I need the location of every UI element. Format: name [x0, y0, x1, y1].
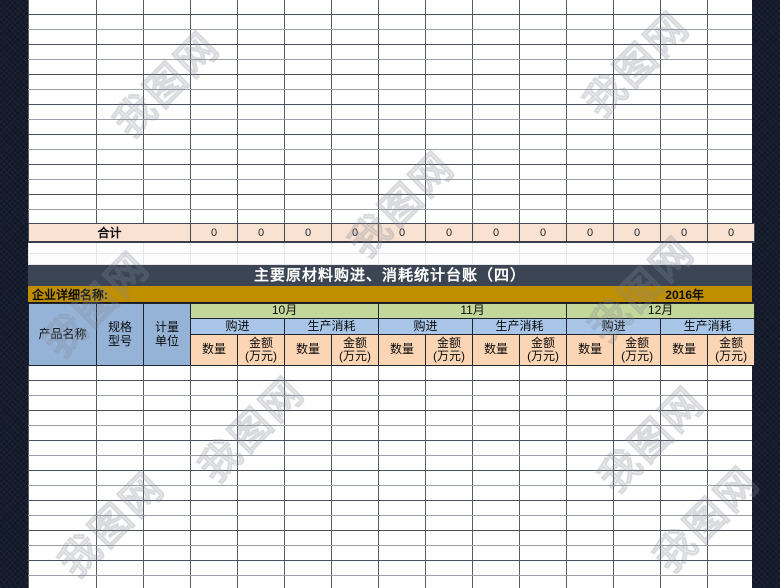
empty-cell[interactable] — [473, 381, 520, 396]
empty-cell[interactable] — [661, 501, 708, 516]
amount-header[interactable]: 金额 (万元) — [332, 335, 379, 366]
empty-cell[interactable] — [567, 426, 614, 441]
purchase-header[interactable]: 购进 — [191, 319, 285, 335]
empty-cell[interactable] — [426, 366, 473, 381]
empty-cell[interactable] — [426, 0, 473, 15]
empty-cell[interactable] — [426, 75, 473, 90]
empty-cell[interactable] — [661, 90, 708, 105]
empty-cell[interactable] — [567, 396, 614, 411]
empty-cell[interactable] — [473, 165, 520, 180]
empty-cell[interactable] — [29, 195, 97, 210]
empty-cell[interactable] — [191, 411, 238, 426]
empty-cell[interactable] — [144, 75, 191, 90]
empty-cell[interactable] — [285, 135, 332, 150]
empty-cell[interactable] — [473, 441, 520, 456]
empty-cell[interactable] — [29, 15, 97, 30]
empty-cell[interactable] — [708, 576, 753, 588]
empty-cell[interactable] — [567, 0, 614, 15]
empty-cell[interactable] — [238, 243, 285, 254]
empty-cell[interactable] — [191, 30, 238, 45]
empty-cell[interactable] — [97, 0, 144, 15]
empty-cell[interactable] — [614, 210, 661, 224]
empty-cell[interactable] — [238, 254, 285, 265]
empty-cell[interactable] — [144, 366, 191, 381]
empty-cell[interactable] — [473, 411, 520, 426]
empty-cell[interactable] — [332, 30, 379, 45]
empty-cell[interactable] — [379, 60, 426, 75]
empty-cell[interactable] — [426, 210, 473, 224]
empty-cell[interactable] — [285, 195, 332, 210]
empty-cell[interactable] — [520, 243, 567, 254]
empty-cell[interactable] — [191, 471, 238, 486]
empty-cell[interactable] — [238, 411, 285, 426]
empty-cell[interactable] — [661, 120, 708, 135]
empty-cell[interactable] — [97, 366, 144, 381]
empty-cell[interactable] — [567, 243, 614, 254]
empty-cell[interactable] — [567, 254, 614, 265]
empty-cell[interactable] — [379, 441, 426, 456]
empty-cell[interactable] — [473, 243, 520, 254]
empty-cell[interactable] — [332, 366, 379, 381]
empty-cell[interactable] — [708, 15, 753, 30]
empty-cell[interactable] — [191, 396, 238, 411]
empty-cell[interactable] — [29, 471, 97, 486]
empty-cell[interactable] — [285, 441, 332, 456]
empty-cell[interactable] — [614, 531, 661, 546]
empty-cell[interactable] — [426, 441, 473, 456]
empty-cell[interactable] — [238, 45, 285, 60]
empty-cell[interactable] — [144, 426, 191, 441]
empty-cell[interactable] — [708, 471, 753, 486]
empty-cell[interactable] — [144, 150, 191, 165]
empty-cell[interactable] — [144, 45, 191, 60]
empty-cell[interactable] — [29, 30, 97, 45]
empty-cell[interactable] — [567, 150, 614, 165]
empty-cell[interactable] — [238, 471, 285, 486]
empty-cell[interactable] — [238, 60, 285, 75]
empty-cell[interactable] — [379, 546, 426, 561]
empty-cell[interactable] — [661, 30, 708, 45]
empty-cell[interactable] — [332, 486, 379, 501]
col-header-spec-model[interactable]: 规格 型号 — [97, 304, 144, 366]
empty-cell[interactable] — [614, 165, 661, 180]
empty-cell[interactable] — [614, 381, 661, 396]
empty-cell[interactable] — [426, 135, 473, 150]
empty-cell[interactable] — [285, 165, 332, 180]
empty-cell[interactable] — [708, 441, 753, 456]
empty-cell[interactable] — [97, 561, 144, 576]
empty-cell[interactable] — [144, 210, 191, 224]
empty-cell[interactable] — [614, 426, 661, 441]
empty-cell[interactable] — [661, 210, 708, 224]
empty-cell[interactable] — [661, 516, 708, 531]
empty-cell[interactable] — [97, 120, 144, 135]
empty-cell[interactable] — [285, 210, 332, 224]
empty-cell[interactable] — [473, 120, 520, 135]
empty-cell[interactable] — [708, 210, 753, 224]
empty-cell[interactable] — [332, 105, 379, 120]
empty-cell[interactable] — [332, 501, 379, 516]
empty-cell[interactable] — [520, 501, 567, 516]
empty-cell[interactable] — [191, 426, 238, 441]
empty-cell[interactable] — [238, 561, 285, 576]
empty-cell[interactable] — [708, 135, 753, 150]
empty-cell[interactable] — [238, 180, 285, 195]
empty-cell[interactable] — [379, 254, 426, 265]
empty-cell[interactable] — [473, 0, 520, 15]
empty-cell[interactable] — [567, 456, 614, 471]
empty-cell[interactable] — [144, 576, 191, 588]
empty-cell[interactable] — [661, 561, 708, 576]
empty-cell[interactable] — [238, 90, 285, 105]
empty-cell[interactable] — [191, 90, 238, 105]
empty-cell[interactable] — [332, 45, 379, 60]
empty-cell[interactable] — [426, 456, 473, 471]
empty-cell[interactable] — [567, 471, 614, 486]
empty-cell[interactable] — [379, 120, 426, 135]
empty-cell[interactable] — [29, 576, 97, 588]
empty-cell[interactable] — [473, 195, 520, 210]
empty-cell[interactable] — [520, 150, 567, 165]
empty-cell[interactable] — [567, 381, 614, 396]
empty-cell[interactable] — [238, 366, 285, 381]
empty-cell[interactable] — [708, 396, 753, 411]
empty-cell[interactable] — [285, 30, 332, 45]
empty-cell[interactable] — [426, 195, 473, 210]
empty-cell[interactable] — [661, 0, 708, 15]
empty-cell[interactable] — [191, 381, 238, 396]
empty-cell[interactable] — [191, 75, 238, 90]
empty-cell[interactable] — [520, 411, 567, 426]
empty-cell[interactable] — [29, 366, 97, 381]
empty-cell[interactable] — [285, 105, 332, 120]
empty-cell[interactable] — [285, 243, 332, 254]
empty-cell[interactable] — [29, 411, 97, 426]
empty-cell[interactable] — [520, 0, 567, 15]
empty-cell[interactable] — [426, 90, 473, 105]
empty-cell[interactable] — [473, 426, 520, 441]
empty-cell[interactable] — [144, 180, 191, 195]
amount-header[interactable]: 金额 (万元) — [426, 335, 473, 366]
empty-cell[interactable] — [708, 366, 753, 381]
empty-cell[interactable] — [332, 90, 379, 105]
empty-cell[interactable] — [520, 471, 567, 486]
empty-cell[interactable] — [332, 150, 379, 165]
empty-cell[interactable] — [97, 426, 144, 441]
empty-cell[interactable] — [379, 381, 426, 396]
consumption-header[interactable]: 生产消耗 — [285, 319, 379, 335]
empty-cell[interactable] — [567, 60, 614, 75]
empty-cell[interactable] — [520, 426, 567, 441]
empty-cell[interactable] — [614, 501, 661, 516]
empty-cell[interactable] — [614, 546, 661, 561]
empty-cell[interactable] — [29, 60, 97, 75]
empty-cell[interactable] — [29, 396, 97, 411]
empty-cell[interactable] — [567, 561, 614, 576]
empty-cell[interactable] — [661, 75, 708, 90]
empty-cell[interactable] — [473, 471, 520, 486]
empty-cell[interactable] — [473, 135, 520, 150]
empty-cell[interactable] — [567, 120, 614, 135]
empty-cell[interactable] — [708, 165, 753, 180]
empty-cell[interactable] — [379, 135, 426, 150]
empty-cell[interactable] — [567, 366, 614, 381]
empty-cell[interactable] — [238, 546, 285, 561]
empty-cell[interactable] — [473, 254, 520, 265]
empty-cell[interactable] — [191, 0, 238, 15]
year-label[interactable]: 2016年 — [665, 286, 704, 303]
empty-cell[interactable] — [520, 366, 567, 381]
empty-cell[interactable] — [520, 165, 567, 180]
empty-cell[interactable] — [238, 105, 285, 120]
empty-cell[interactable] — [661, 576, 708, 588]
empty-cell[interactable] — [285, 471, 332, 486]
empty-cell[interactable] — [520, 254, 567, 265]
empty-cell[interactable] — [708, 501, 753, 516]
empty-cell[interactable] — [29, 210, 97, 224]
empty-cell[interactable] — [238, 516, 285, 531]
empty-cell[interactable] — [97, 15, 144, 30]
empty-cell[interactable] — [191, 456, 238, 471]
empty-cell[interactable] — [379, 456, 426, 471]
empty-cell[interactable] — [661, 441, 708, 456]
empty-cell[interactable] — [379, 426, 426, 441]
empty-cell[interactable] — [426, 165, 473, 180]
empty-cell[interactable] — [191, 254, 238, 265]
empty-cell[interactable] — [332, 120, 379, 135]
empty-cell[interactable] — [191, 501, 238, 516]
empty-cell[interactable] — [473, 501, 520, 516]
empty-cell[interactable] — [708, 411, 753, 426]
empty-cell[interactable] — [97, 243, 144, 254]
empty-cell[interactable] — [97, 501, 144, 516]
empty-cell[interactable] — [708, 180, 753, 195]
empty-cell[interactable] — [144, 105, 191, 120]
empty-cell[interactable] — [661, 471, 708, 486]
empty-cell[interactable] — [29, 45, 97, 60]
empty-cell[interactable] — [567, 576, 614, 588]
empty-cell[interactable] — [661, 180, 708, 195]
empty-cell[interactable] — [238, 0, 285, 15]
empty-cell[interactable] — [708, 561, 753, 576]
empty-cell[interactable] — [332, 531, 379, 546]
empty-cell[interactable] — [520, 576, 567, 588]
empty-cell[interactable] — [426, 561, 473, 576]
empty-cell[interactable] — [29, 180, 97, 195]
empty-cell[interactable] — [614, 396, 661, 411]
empty-cell[interactable] — [426, 411, 473, 426]
empty-cell[interactable] — [426, 60, 473, 75]
empty-cell[interactable] — [520, 486, 567, 501]
empty-cell[interactable] — [379, 150, 426, 165]
empty-cell[interactable] — [426, 30, 473, 45]
empty-cell[interactable] — [97, 165, 144, 180]
empty-cell[interactable] — [29, 441, 97, 456]
empty-cell[interactable] — [238, 531, 285, 546]
empty-cell[interactable] — [567, 15, 614, 30]
empty-cell[interactable] — [332, 15, 379, 30]
amount-header[interactable]: 金额 (万元) — [238, 335, 285, 366]
empty-cell[interactable] — [29, 501, 97, 516]
empty-cell[interactable] — [520, 381, 567, 396]
empty-cell[interactable] — [708, 546, 753, 561]
empty-cell[interactable] — [520, 531, 567, 546]
empty-cell[interactable] — [567, 411, 614, 426]
empty-cell[interactable] — [332, 254, 379, 265]
empty-cell[interactable] — [473, 90, 520, 105]
empty-cell[interactable] — [661, 150, 708, 165]
empty-cell[interactable] — [426, 531, 473, 546]
empty-cell[interactable] — [191, 441, 238, 456]
empty-cell[interactable] — [144, 254, 191, 265]
empty-cell[interactable] — [473, 561, 520, 576]
empty-cell[interactable] — [473, 180, 520, 195]
empty-cell[interactable] — [708, 60, 753, 75]
empty-cell[interactable] — [614, 486, 661, 501]
empty-cell[interactable] — [614, 15, 661, 30]
empty-cell[interactable] — [285, 411, 332, 426]
empty-cell[interactable] — [614, 561, 661, 576]
empty-cell[interactable] — [238, 426, 285, 441]
empty-cell[interactable] — [332, 381, 379, 396]
quantity-header[interactable]: 数量 — [285, 335, 332, 366]
empty-cell[interactable] — [708, 195, 753, 210]
empty-cell[interactable] — [332, 456, 379, 471]
empty-cell[interactable] — [97, 60, 144, 75]
company-name-label[interactable]: 企业详细名称: — [32, 286, 108, 303]
empty-cell[interactable] — [238, 135, 285, 150]
empty-cell[interactable] — [285, 180, 332, 195]
empty-cell[interactable] — [191, 531, 238, 546]
empty-cell[interactable] — [144, 0, 191, 15]
total-value-cell[interactable]: 0 — [520, 224, 567, 243]
empty-cell[interactable] — [238, 30, 285, 45]
empty-cell[interactable] — [379, 411, 426, 426]
empty-cell[interactable] — [708, 254, 753, 265]
empty-cell[interactable] — [520, 516, 567, 531]
total-value-cell[interactable]: 0 — [473, 224, 520, 243]
empty-cell[interactable] — [97, 105, 144, 120]
empty-cell[interactable] — [426, 15, 473, 30]
empty-cell[interactable] — [708, 45, 753, 60]
empty-cell[interactable] — [332, 471, 379, 486]
empty-cell[interactable] — [614, 195, 661, 210]
empty-cell[interactable] — [97, 30, 144, 45]
empty-cell[interactable] — [614, 180, 661, 195]
empty-cell[interactable] — [379, 45, 426, 60]
quantity-header[interactable]: 数量 — [473, 335, 520, 366]
empty-cell[interactable] — [426, 396, 473, 411]
empty-cell[interactable] — [29, 486, 97, 501]
empty-cell[interactable] — [285, 576, 332, 588]
empty-cell[interactable] — [379, 105, 426, 120]
empty-cell[interactable] — [29, 546, 97, 561]
empty-cell[interactable] — [473, 366, 520, 381]
empty-cell[interactable] — [661, 396, 708, 411]
empty-cell[interactable] — [520, 441, 567, 456]
empty-cell[interactable] — [520, 30, 567, 45]
empty-cell[interactable] — [97, 576, 144, 588]
empty-cell[interactable] — [614, 150, 661, 165]
empty-cell[interactable] — [661, 254, 708, 265]
empty-cell[interactable] — [614, 45, 661, 60]
empty-cell[interactable] — [426, 105, 473, 120]
empty-cell[interactable] — [614, 30, 661, 45]
empty-cell[interactable] — [473, 60, 520, 75]
empty-cell[interactable] — [379, 195, 426, 210]
empty-cell[interactable] — [97, 441, 144, 456]
empty-cell[interactable] — [144, 486, 191, 501]
empty-cell[interactable] — [238, 75, 285, 90]
empty-cell[interactable] — [426, 576, 473, 588]
empty-cell[interactable] — [708, 30, 753, 45]
empty-cell[interactable] — [379, 516, 426, 531]
empty-cell[interactable] — [238, 501, 285, 516]
empty-cell[interactable] — [144, 471, 191, 486]
empty-cell[interactable] — [473, 30, 520, 45]
empty-cell[interactable] — [29, 75, 97, 90]
total-value-cell[interactable]: 0 — [285, 224, 332, 243]
empty-cell[interactable] — [520, 561, 567, 576]
col-header-measure-unit[interactable]: 计量 单位 — [144, 304, 191, 366]
quantity-header[interactable]: 数量 — [379, 335, 426, 366]
empty-cell[interactable] — [144, 165, 191, 180]
empty-cell[interactable] — [661, 45, 708, 60]
total-value-cell[interactable]: 0 — [238, 224, 285, 243]
empty-cell[interactable] — [285, 516, 332, 531]
empty-cell[interactable] — [614, 0, 661, 15]
empty-cell[interactable] — [379, 75, 426, 90]
empty-cell[interactable] — [614, 120, 661, 135]
empty-cell[interactable] — [285, 546, 332, 561]
empty-cell[interactable] — [332, 75, 379, 90]
empty-cell[interactable] — [520, 135, 567, 150]
empty-cell[interactable] — [473, 210, 520, 224]
empty-cell[interactable] — [473, 531, 520, 546]
empty-cell[interactable] — [285, 90, 332, 105]
amount-header[interactable]: 金额 (万元) — [614, 335, 661, 366]
empty-cell[interactable] — [614, 254, 661, 265]
empty-cell[interactable] — [661, 105, 708, 120]
empty-cell[interactable] — [285, 456, 332, 471]
empty-cell[interactable] — [332, 576, 379, 588]
empty-cell[interactable] — [379, 366, 426, 381]
total-value-cell[interactable]: 0 — [191, 224, 238, 243]
empty-cell[interactable] — [29, 165, 97, 180]
empty-cell[interactable] — [144, 411, 191, 426]
empty-cell[interactable] — [29, 90, 97, 105]
empty-cell[interactable] — [379, 501, 426, 516]
empty-cell[interactable] — [144, 501, 191, 516]
empty-cell[interactable] — [285, 0, 332, 15]
empty-cell[interactable] — [97, 45, 144, 60]
amount-header[interactable]: 金额 (万元) — [520, 335, 567, 366]
empty-cell[interactable] — [191, 135, 238, 150]
empty-cell[interactable] — [708, 456, 753, 471]
empty-cell[interactable] — [661, 60, 708, 75]
empty-cell[interactable] — [191, 60, 238, 75]
empty-cell[interactable] — [379, 243, 426, 254]
empty-cell[interactable] — [29, 243, 97, 254]
empty-cell[interactable] — [661, 426, 708, 441]
empty-cell[interactable] — [520, 45, 567, 60]
empty-cell[interactable] — [614, 60, 661, 75]
empty-cell[interactable] — [473, 396, 520, 411]
empty-cell[interactable] — [191, 516, 238, 531]
empty-cell[interactable] — [29, 150, 97, 165]
empty-cell[interactable] — [614, 456, 661, 471]
empty-cell[interactable] — [144, 60, 191, 75]
